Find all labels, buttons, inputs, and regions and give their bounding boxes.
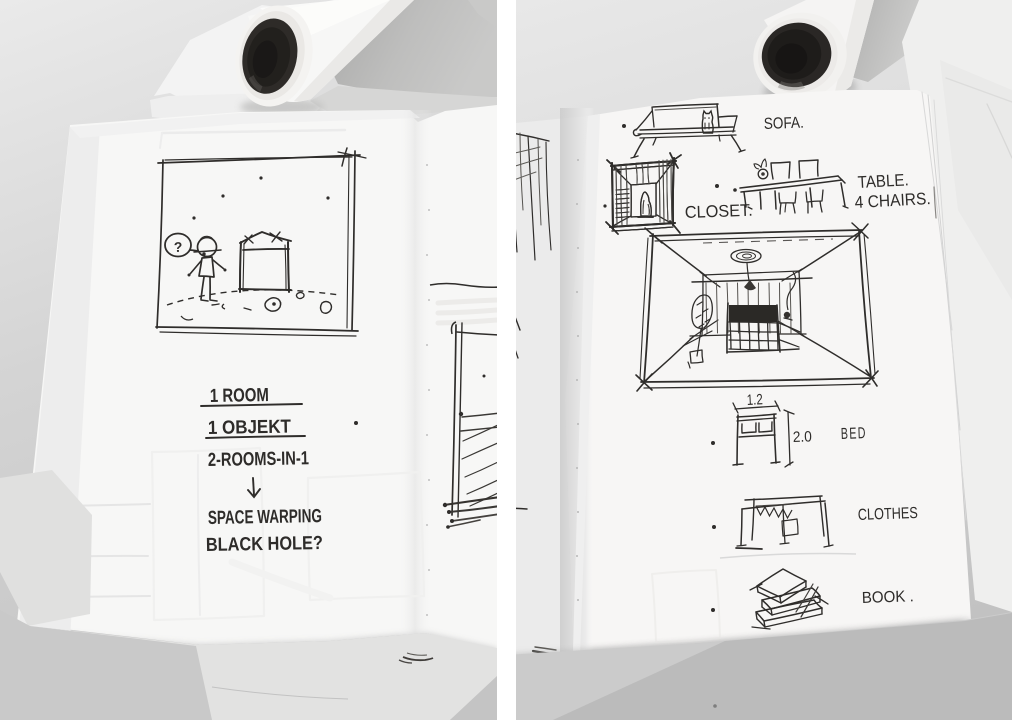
svg-text:CLOTHES: CLOTHES [858,505,919,524]
svg-text:1 ROOM: 1 ROOM [210,385,269,407]
svg-text:SOFA.: SOFA. [764,115,805,133]
svg-text:BED: BED [841,425,868,443]
svg-text:2-ROOMS-IN-1: 2-ROOMS-IN-1 [208,448,310,471]
svg-text:?: ? [174,239,183,255]
svg-text:1.2: 1.2 [746,391,763,409]
svg-text:4 CHAIRS.: 4 CHAIRS. [854,189,931,212]
svg-text:BLACK HOLE?: BLACK HOLE? [206,533,323,556]
svg-text:2.0: 2.0 [793,428,813,446]
svg-text:BOOK .: BOOK . [862,588,915,607]
svg-text:CLOSET.: CLOSET. [684,201,753,222]
svg-text:SPACE WARPING: SPACE WARPING [208,506,322,529]
svg-text:TABLE.: TABLE. [857,170,909,192]
